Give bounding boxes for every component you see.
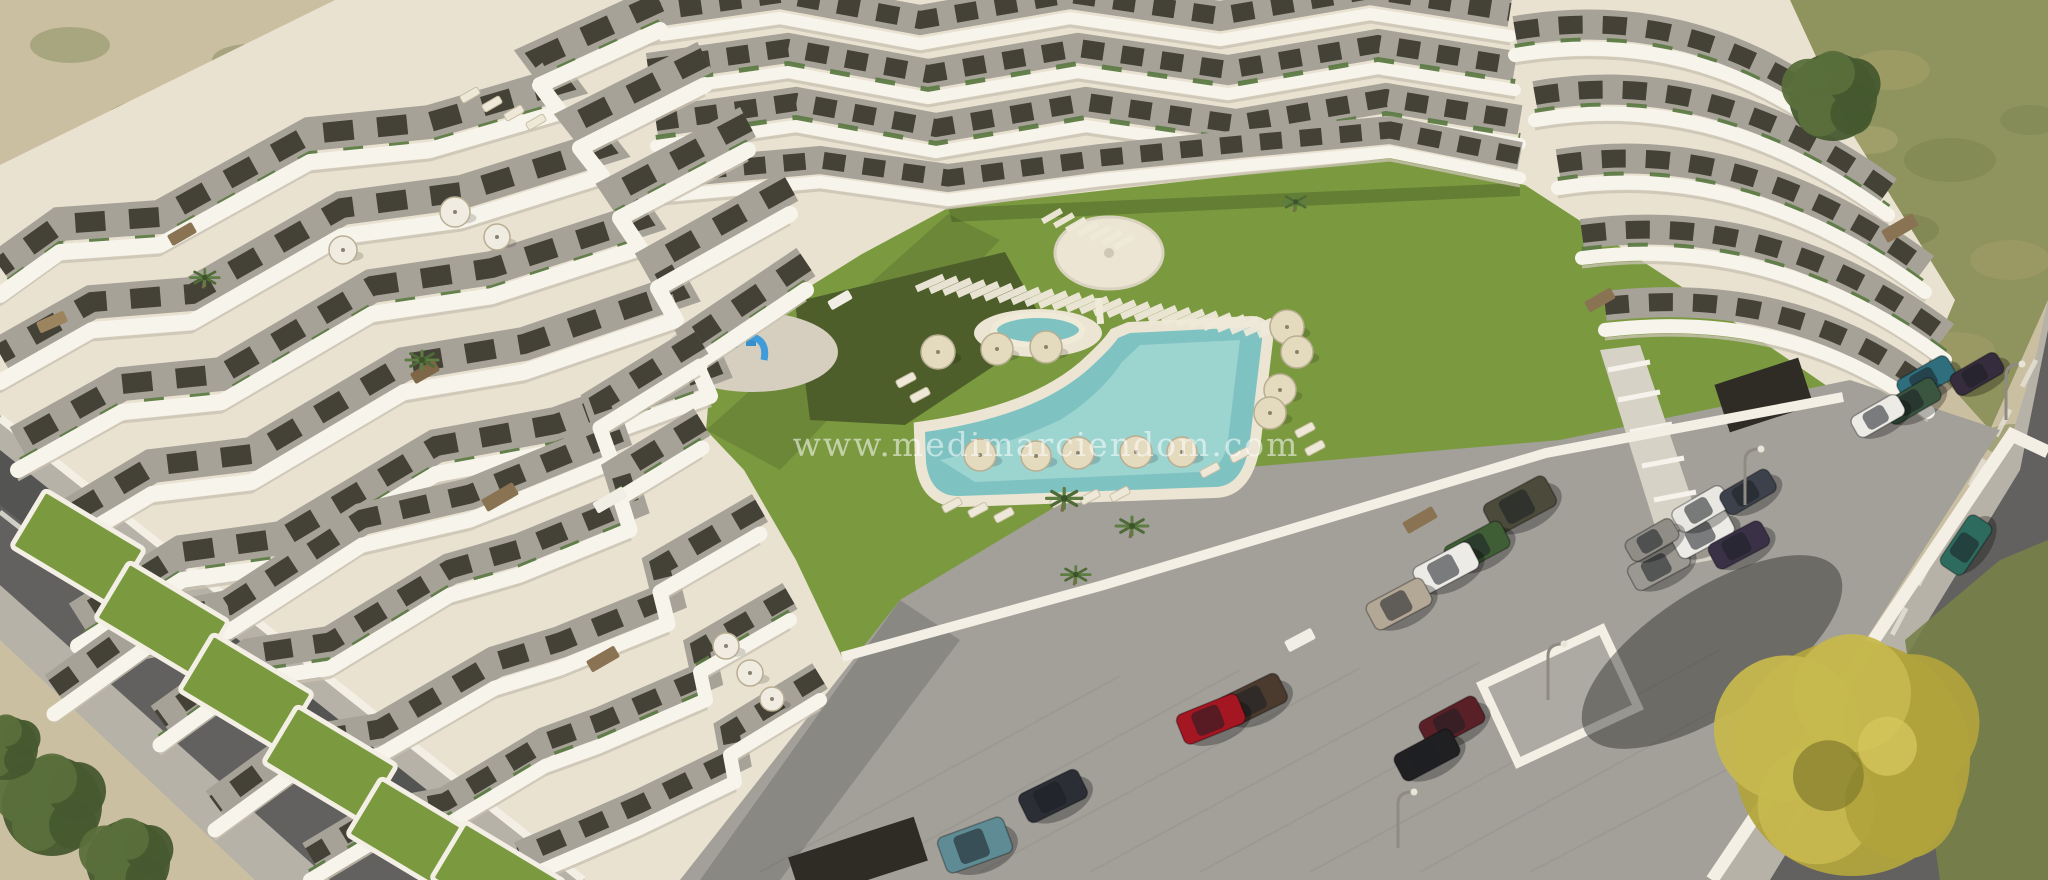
- tree-canopy: [1793, 740, 1864, 811]
- parasol-pole: [936, 350, 940, 354]
- tree-canopy: [1830, 93, 1872, 135]
- ground-patch: [30, 27, 110, 63]
- tree-canopy: [1858, 717, 1917, 776]
- parasol-pole: [748, 671, 752, 675]
- tree-canopy: [1811, 51, 1855, 95]
- lamp-head: [1411, 789, 1418, 796]
- parasol-pole: [724, 644, 728, 648]
- architectural-render: www.medimarciendom.com: [0, 0, 2048, 880]
- lamp-head: [1758, 446, 1765, 453]
- ground-patch: [1904, 138, 1996, 182]
- lamp-head: [1561, 641, 1568, 648]
- parasol-pole: [1268, 411, 1272, 415]
- parasol-pole: [995, 347, 999, 351]
- watermark-text: www.medimarciendom.com: [793, 425, 1300, 464]
- lamp-head: [2019, 361, 2026, 368]
- parasol-pole: [1295, 350, 1299, 354]
- parasol-pole: [770, 697, 774, 701]
- parasol-pole: [1044, 345, 1048, 349]
- tree-canopy: [107, 818, 149, 860]
- parasol-pole: [453, 210, 457, 214]
- ground-patch: [1970, 240, 2048, 280]
- parasol-pole: [341, 248, 345, 252]
- plaza-center: [1104, 248, 1114, 258]
- tree-canopy: [4, 745, 35, 776]
- parasol-pole: [1278, 388, 1282, 392]
- parasol-pole: [1285, 325, 1289, 329]
- parasol-pole: [495, 235, 499, 239]
